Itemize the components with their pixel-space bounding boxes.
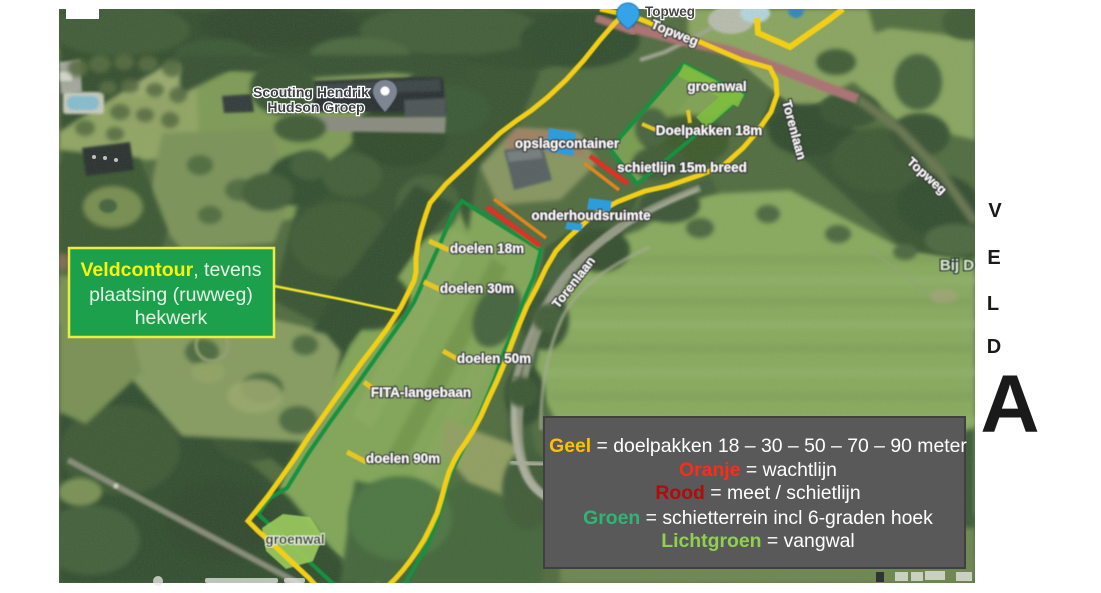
svg-text:doelen 18m: doelen 18m: [450, 241, 524, 256]
svg-text:Lichtgroen = vangwal: Lichtgroen = vangwal: [661, 530, 854, 552]
svg-text:Veldcontour, tevens: Veldcontour, tevens: [81, 259, 262, 281]
svg-text:L: L: [987, 293, 999, 315]
svg-text:FITA-langebaan: FITA-langebaan: [371, 385, 471, 400]
svg-text:groenwal: groenwal: [265, 532, 324, 547]
svg-text:doelen 50m: doelen 50m: [457, 351, 531, 366]
svg-text:E: E: [987, 247, 1000, 269]
svg-text:hekwerk: hekwerk: [135, 307, 208, 329]
svg-text:Rood = meet / schietlijn: Rood = meet / schietlijn: [655, 482, 860, 504]
svg-text:doelen 30m: doelen 30m: [440, 281, 514, 296]
svg-text:groenwal: groenwal: [687, 79, 746, 94]
svg-text:onderhoudsruimte: onderhoudsruimte: [531, 208, 651, 223]
svg-text:Topweg: Topweg: [645, 4, 695, 19]
svg-text:A: A: [980, 359, 1039, 450]
svg-text:Hudson Groep: Hudson Groep: [267, 99, 364, 115]
svg-text:doelen 90m: doelen 90m: [366, 451, 440, 466]
svg-text:Geel = doelpakken 18 – 30 – 50: Geel = doelpakken 18 – 30 – 50 – 70 – 90…: [549, 435, 967, 457]
svg-text:Groen = schietterrein incl 6-g: Groen = schietterrein incl 6-graden hoek: [583, 507, 933, 529]
svg-text:Doelpakken 18m: Doelpakken 18m: [656, 123, 763, 138]
svg-text:plaatsing (ruwweg): plaatsing (ruwweg): [89, 284, 253, 306]
svg-text:D: D: [987, 336, 1001, 358]
svg-text:Bij D: Bij D: [940, 257, 974, 274]
svg-text:schietlijn 15m breed: schietlijn 15m breed: [617, 160, 747, 175]
svg-text:Scouting Hendrik: Scouting Hendrik: [253, 84, 369, 100]
svg-text:V: V: [988, 200, 1002, 222]
svg-text:opslagcontainer: opslagcontainer: [515, 136, 620, 151]
svg-text:Oranje = wachtlijn: Oranje = wachtlijn: [679, 459, 837, 481]
